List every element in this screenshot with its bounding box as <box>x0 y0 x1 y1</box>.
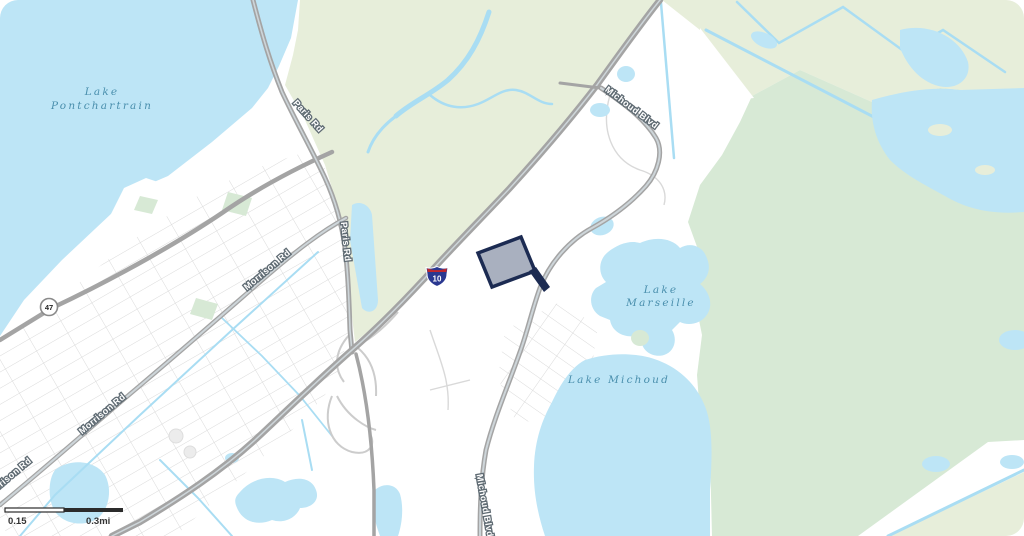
map-canvas[interactable]: 10 47 Lake Pontchartrain Lake Marseille … <box>0 0 1024 536</box>
lake-marseille-label: Lake <box>643 284 679 296</box>
map-frame: 10 47 Lake Pontchartrain Lake Marseille … <box>0 0 1024 536</box>
interstate-10-number: 10 <box>433 275 442 284</box>
lake-pontchartrain-label: Lake <box>84 86 120 98</box>
lake-michoud-label: Lake Michoud <box>567 374 670 386</box>
route-47-number: 47 <box>45 303 53 312</box>
route-47-shield: 47 <box>41 299 58 316</box>
lake-pontchartrain-label: Pontchartrain <box>50 100 153 112</box>
scale-half-label: 0.15 <box>8 516 27 527</box>
lake-marseille-label: Marseille <box>625 297 696 309</box>
scale-full-label: 0.3mi <box>86 516 110 527</box>
